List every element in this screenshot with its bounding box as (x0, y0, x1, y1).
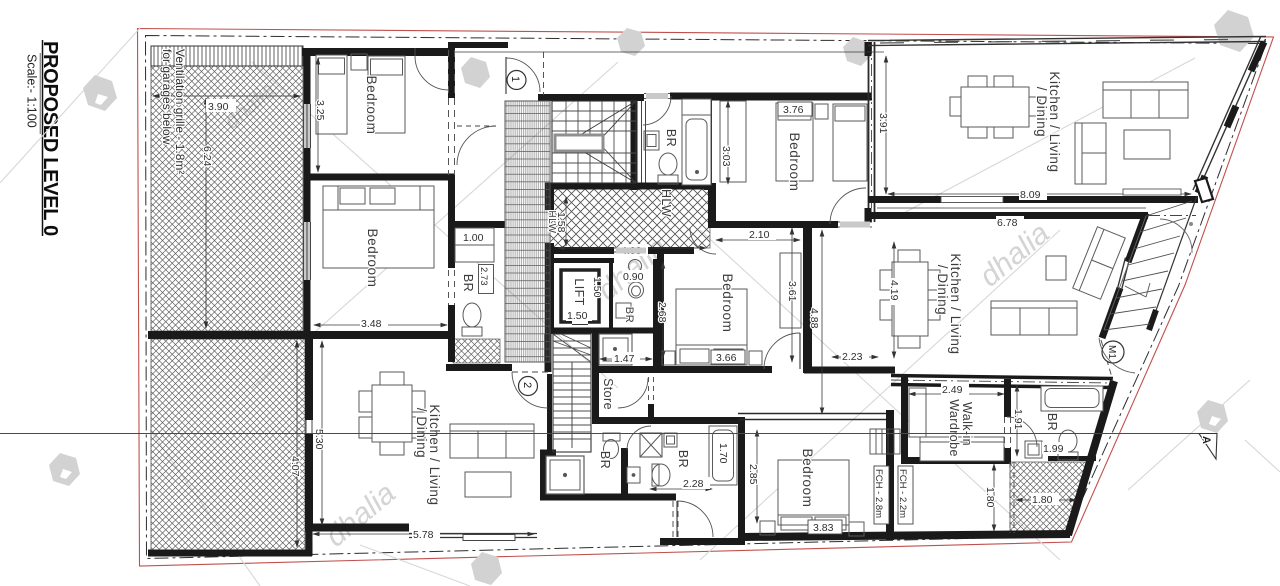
svg-text:HLW: HLW (546, 210, 557, 233)
svg-text:4.07: 4.07 (289, 456, 301, 477)
svg-text:2.23: 2.23 (842, 351, 863, 363)
svg-text:Store: Store (601, 378, 615, 410)
svg-text:BR: BR (461, 274, 475, 292)
svg-text:1.99: 1.99 (1043, 443, 1064, 455)
svg-text:3.76: 3.76 (783, 104, 804, 116)
svg-text:BR: BR (676, 450, 690, 468)
svg-text:2.68: 2.68 (656, 302, 668, 323)
svg-text:6.78: 6.78 (997, 217, 1018, 229)
svg-text:Wardrobe: Wardrobe (947, 399, 961, 457)
svg-text:1.80: 1.80 (984, 487, 996, 508)
svg-text:BR: BR (598, 451, 612, 469)
svg-text:LIFT: LIFT (572, 278, 586, 305)
svg-text:2: 2 (521, 382, 533, 388)
svg-text:2.28: 2.28 (683, 478, 704, 490)
svg-text:2.85: 2.85 (747, 464, 759, 485)
svg-text:1.70: 1.70 (717, 443, 729, 464)
svg-text:2.10: 2.10 (749, 229, 770, 241)
svg-text:Bedroom: Bedroom (365, 229, 380, 288)
svg-text:/ Dining: / Dining (1034, 87, 1049, 138)
svg-text:4.19: 4.19 (888, 280, 900, 301)
svg-text:A: A (1200, 436, 1212, 444)
svg-text:Scale:- 1:100: Scale:- 1:100 (25, 54, 39, 128)
svg-text:1: 1 (509, 76, 521, 82)
svg-text:Walk-in: Walk-in (960, 402, 974, 446)
svg-text:BR: BR (1045, 413, 1059, 431)
svg-text:1.91: 1.91 (1012, 409, 1024, 430)
svg-text:3.03: 3.03 (720, 146, 732, 167)
svg-text:for garages below: for garages below (160, 49, 174, 145)
svg-text:3.48: 3.48 (361, 318, 382, 330)
svg-text:M1: M1 (1106, 345, 1117, 359)
svg-text:1.80: 1.80 (1032, 494, 1053, 506)
svg-text:4.88: 4.88 (808, 308, 820, 329)
svg-text:Bedroom: Bedroom (800, 449, 815, 508)
svg-text:2.73: 2.73 (478, 267, 489, 286)
svg-text:/ Dining: / Dining (414, 408, 429, 459)
svg-text:3.91: 3.91 (877, 113, 889, 134)
svg-text:3.61: 3.61 (786, 281, 798, 302)
svg-text:3.25: 3.25 (314, 100, 326, 121)
svg-text:/ Dining: / Dining (935, 265, 950, 316)
svg-text:HLW: HLW (659, 189, 673, 217)
svg-text:Bedroom: Bedroom (720, 274, 735, 333)
svg-text:0.90: 0.90 (623, 271, 644, 283)
svg-text:Bedroom: Bedroom (364, 76, 379, 135)
svg-text:1.50: 1.50 (567, 310, 588, 322)
svg-text:3.83: 3.83 (813, 522, 834, 534)
svg-text:5.78: 5.78 (413, 529, 434, 541)
svg-text:1.00: 1.00 (463, 232, 484, 244)
svg-text:Ventilation grille - 1.8m²: Ventilation grille - 1.8m² (173, 49, 187, 174)
svg-text:3.66: 3.66 (716, 352, 737, 364)
svg-text:FCH - 2.8m: FCH - 2.8m (873, 469, 884, 518)
svg-text:3.90: 3.90 (208, 101, 229, 113)
svg-text:1.50: 1.50 (591, 277, 603, 298)
svg-text:8.09: 8.09 (1020, 189, 1041, 201)
svg-text:5.30: 5.30 (313, 429, 325, 450)
svg-text:BR: BR (664, 129, 678, 147)
svg-text:BR: BR (623, 307, 635, 323)
svg-text:dhalia: dhalia (319, 477, 402, 554)
svg-text:6.24: 6.24 (201, 146, 213, 167)
svg-text:2.49: 2.49 (942, 384, 963, 396)
svg-text:Bedroom: Bedroom (787, 133, 802, 192)
svg-text:1.47: 1.47 (614, 353, 635, 365)
svg-text:FCH - 2.2m: FCH - 2.2m (897, 469, 908, 518)
